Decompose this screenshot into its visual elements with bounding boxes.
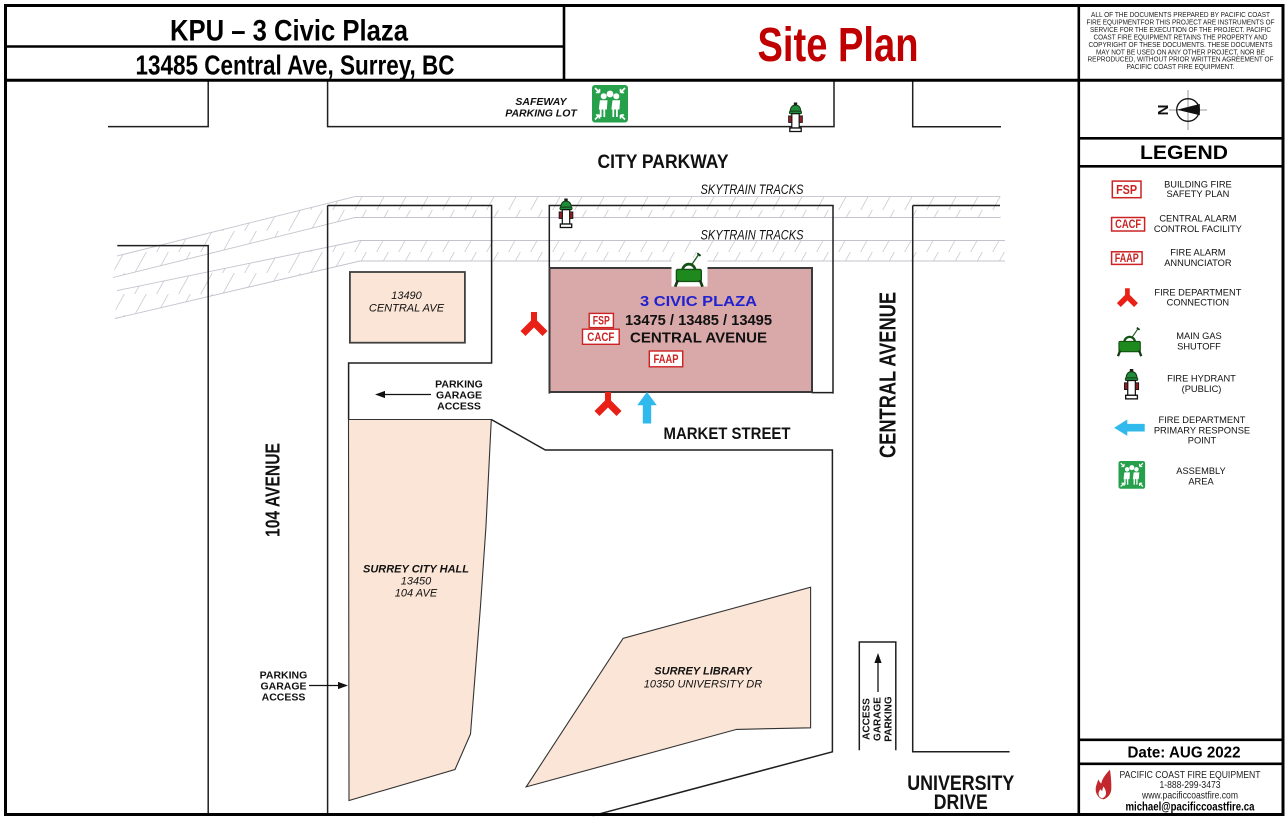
svg-text:3 CIVIC PLAZA: 3 CIVIC PLAZA bbox=[640, 294, 758, 310]
svg-text:SHUTOFF: SHUTOFF bbox=[1177, 341, 1221, 351]
svg-text:MAIN GAS: MAIN GAS bbox=[1176, 331, 1221, 341]
svg-text:10350 UNIVERSITY DR: 10350 UNIVERSITY DR bbox=[644, 679, 762, 691]
svg-text:SAFETY PLAN: SAFETY PLAN bbox=[1166, 189, 1229, 199]
svg-text:13450: 13450 bbox=[401, 576, 432, 588]
svg-text:FIRE EQUIPMENTFOR THIS PROJECT: FIRE EQUIPMENTFOR THIS PROJECT ARE INSTR… bbox=[1087, 19, 1275, 26]
svg-text:CONTROL FACILITY: CONTROL FACILITY bbox=[1154, 224, 1242, 234]
svg-text:13475 / 13485 / 13495: 13475 / 13485 / 13495 bbox=[625, 312, 772, 329]
svg-text:13485 Central Ave, Surrey, BC: 13485 Central Ave, Surrey, BC bbox=[136, 50, 455, 81]
svg-text:ASSEMBLY: ASSEMBLY bbox=[1176, 466, 1225, 476]
svg-text:michael@pacificcoastfire.ca: michael@pacificcoastfire.ca bbox=[1126, 802, 1255, 814]
svg-text:ACCESS: ACCESS bbox=[437, 401, 481, 413]
svg-text:PARKING LOT: PARKING LOT bbox=[505, 108, 578, 120]
svg-text:MAY NOT BE USED ON ANY OTHER P: MAY NOT BE USED ON ANY OTHER PROJECT, NO… bbox=[1096, 49, 1265, 56]
svg-text:FSP: FSP bbox=[1116, 182, 1137, 197]
svg-text:LEGEND: LEGEND bbox=[1140, 143, 1228, 164]
svg-text:COAST FIRE EQUIPMENT RETAINS T: COAST FIRE EQUIPMENT RETAINS THE PROPERT… bbox=[1094, 34, 1268, 41]
svg-text:PRIMARY RESPONSE: PRIMARY RESPONSE bbox=[1154, 425, 1250, 435]
svg-text:SERVICE FOR THE EXECUTION OF T: SERVICE FOR THE EXECUTION OF THE PROJECT… bbox=[1090, 27, 1271, 34]
svg-text:POINT: POINT bbox=[1188, 436, 1217, 446]
svg-text:FSP: FSP bbox=[593, 313, 610, 327]
svg-text:CENTRAL ALARM: CENTRAL ALARM bbox=[1159, 214, 1236, 224]
svg-text:ALL OF THE DOCUMENTS PREPARED: ALL OF THE DOCUMENTS PREPARED BY PACIFIC… bbox=[1091, 12, 1271, 19]
svg-text:www.pacificcoastfire.com: www.pacificcoastfire.com bbox=[1141, 791, 1238, 802]
svg-text:ACCESS: ACCESS bbox=[262, 692, 306, 704]
svg-text:PACIFIC COAST FIRE EQUIPMENT.: PACIFIC COAST FIRE EQUIPMENT. bbox=[1127, 64, 1235, 71]
svg-text:ACCESSGARAGEPARKING: ACCESSGARAGEPARKING bbox=[862, 696, 895, 742]
svg-text:CACF: CACF bbox=[587, 330, 614, 344]
svg-text:SAFEWAY: SAFEWAY bbox=[515, 96, 567, 108]
svg-text:FAAP: FAAP bbox=[654, 352, 679, 366]
svg-text:COPYRIGHT OF THESE DOCUMENTS.: COPYRIGHT OF THESE DOCUMENTS. THESE DOCU… bbox=[1089, 42, 1273, 49]
svg-text:CENTRAL AVENUE: CENTRAL AVENUE bbox=[630, 330, 767, 347]
svg-text:FAAP: FAAP bbox=[1115, 251, 1139, 265]
svg-text:SURREY LIBRARY: SURREY LIBRARY bbox=[654, 666, 753, 678]
svg-text:CACF: CACF bbox=[1115, 217, 1141, 231]
svg-text:CENTRAL AVENUE: CENTRAL AVENUE bbox=[875, 292, 901, 458]
svg-text:FIRE HYDRANT: FIRE HYDRANT bbox=[1167, 373, 1236, 383]
svg-text:FIRE DEPARTMENT: FIRE DEPARTMENT bbox=[1154, 287, 1241, 297]
svg-text:SURREY CITY HALL: SURREY CITY HALL bbox=[363, 564, 469, 576]
svg-text:KPU – 3 Civic Plaza: KPU – 3 Civic Plaza bbox=[170, 14, 408, 47]
svg-text:Site Plan: Site Plan bbox=[758, 19, 919, 72]
svg-text:N: N bbox=[1155, 105, 1172, 116]
svg-text:REPRODUCED, WITHOUT PRIOR WRIT: REPRODUCED, WITHOUT PRIOR WRITTEN AGREEM… bbox=[1088, 57, 1274, 64]
svg-text:MARKET STREET: MARKET STREET bbox=[664, 424, 792, 443]
svg-text:SKYTRAIN TRACKS: SKYTRAIN TRACKS bbox=[701, 228, 804, 243]
svg-text:CONNECTION: CONNECTION bbox=[1167, 297, 1230, 307]
svg-text:(PUBLIC): (PUBLIC) bbox=[1182, 384, 1222, 394]
svg-text:1-888-299-3473: 1-888-299-3473 bbox=[1160, 780, 1221, 791]
svg-text:13490: 13490 bbox=[391, 290, 422, 302]
svg-text:Date: AUG 2022: Date: AUG 2022 bbox=[1128, 744, 1241, 761]
svg-text:SKYTRAIN TRACKS: SKYTRAIN TRACKS bbox=[701, 182, 804, 197]
svg-text:BUILDING FIRE: BUILDING FIRE bbox=[1164, 180, 1232, 190]
svg-text:FIRE ALARM: FIRE ALARM bbox=[1170, 248, 1225, 258]
svg-text:FIRE DEPARTMENT: FIRE DEPARTMENT bbox=[1159, 415, 1246, 425]
svg-text:CENTRAL AVE: CENTRAL AVE bbox=[369, 303, 445, 315]
svg-text:104 AVE: 104 AVE bbox=[395, 588, 438, 600]
svg-text:104 AVENUE: 104 AVENUE bbox=[263, 443, 285, 537]
svg-text:AREA: AREA bbox=[1188, 477, 1214, 487]
svg-text:ANNUNCIATOR: ANNUNCIATOR bbox=[1164, 258, 1232, 268]
svg-text:CITY PARKWAY: CITY PARKWAY bbox=[598, 152, 729, 173]
svg-text:DRIVE: DRIVE bbox=[934, 791, 988, 814]
